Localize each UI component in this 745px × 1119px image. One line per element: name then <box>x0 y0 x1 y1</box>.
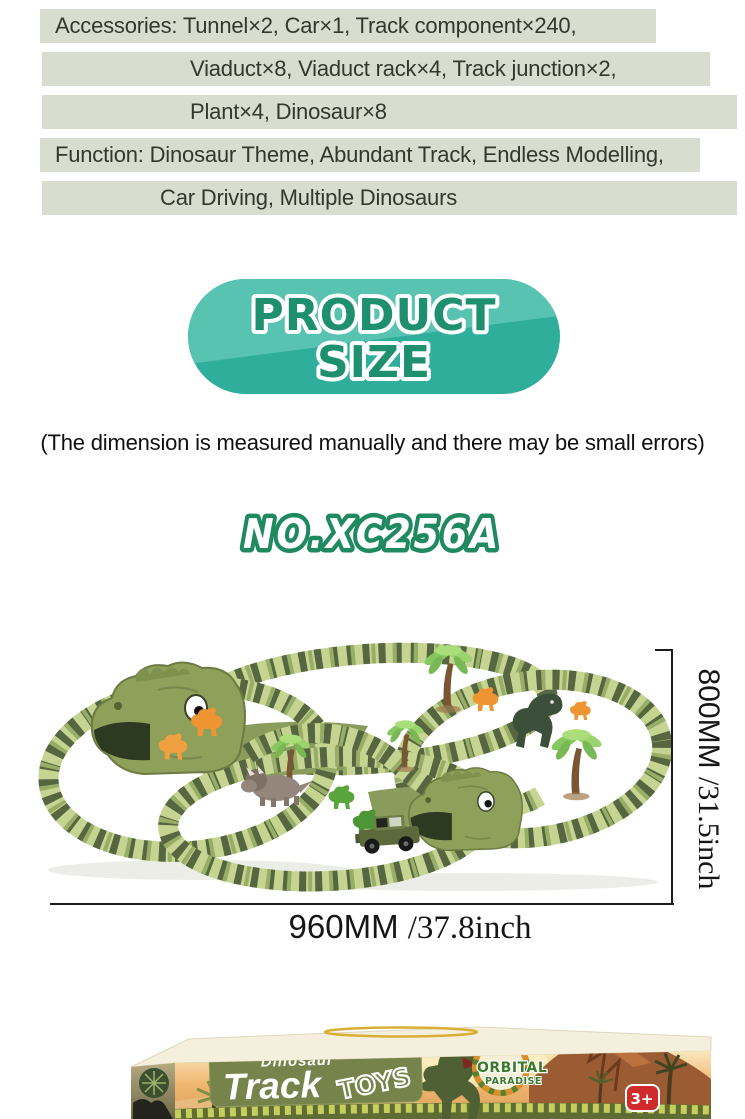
height-dimension-line <box>671 649 673 905</box>
measurement-disclaimer: (The dimension is measured manually and … <box>0 430 745 456</box>
side-logo-burst <box>142 1071 166 1095</box>
spec-line-function: Function: Dinosaur Theme, Abundant Track… <box>40 138 700 172</box>
age-badge-text: 3+ <box>630 1090 653 1108</box>
spec-line-accessories-3: Plant×4, Dinosaur×8 <box>42 95 737 129</box>
age-badge: 3+ <box>626 1085 659 1111</box>
height-inch: /31.5inch <box>692 777 725 890</box>
green-dinosaur-figure <box>329 785 355 809</box>
trex-figure <box>513 694 563 748</box>
orange-dinosaur-figure <box>570 701 591 720</box>
logo-line1-text: ORBITAL <box>477 1060 547 1076</box>
spec-line-accessories: Accessories: Tunnel×2, Car×1, Track comp… <box>40 9 656 43</box>
logo-line2-text: PARADISE <box>485 1076 542 1087</box>
height-dimension-tick <box>655 649 673 651</box>
product-size-badge: PRODUCT SIZE <box>188 279 560 394</box>
product-box-photo: Dinosaur Track TOYS ORBITAL PARADISE 3+ <box>129 1021 715 1119</box>
palm-tree <box>549 728 603 800</box>
spec-line-function-2: Car Driving, Multiple Dinosaurs <box>42 181 737 215</box>
product-size-line2: SIZE <box>317 337 431 388</box>
model-number-text: NO.XC256A <box>243 510 501 558</box>
model-number: NO.XC256A <box>212 502 532 566</box>
width-dimension-label: 960MM /37.8inch <box>240 908 580 947</box>
width-mm: 960MM <box>289 908 399 945</box>
product-photo <box>38 634 676 906</box>
height-dimension-label: 800MM /31.5inch <box>686 650 730 908</box>
height-mm: 800MM <box>692 669 725 769</box>
product-detail-page: Accessories: Tunnel×2, Car×1, Track comp… <box>0 0 745 1119</box>
width-inch: /37.8inch <box>408 910 532 946</box>
width-dimension-line <box>50 903 674 905</box>
spec-line-accessories-2: Viaduct×8, Viaduct rack×4, Track junctio… <box>42 52 710 86</box>
product-size-line1: PRODUCT <box>251 290 496 341</box>
brand-main-text: Track <box>222 1064 324 1108</box>
